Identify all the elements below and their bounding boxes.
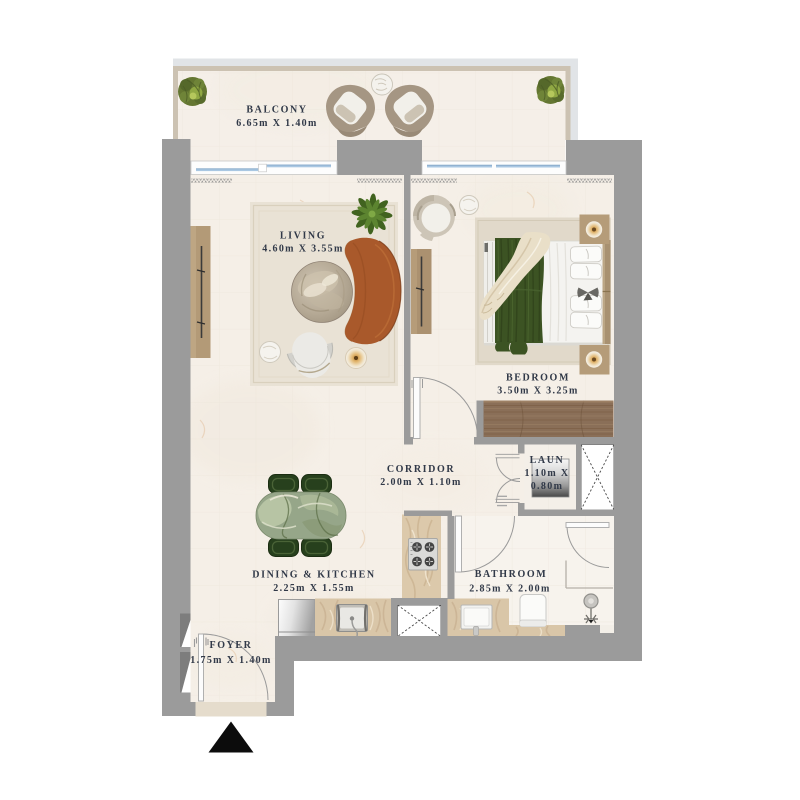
svg-text:LIVING: LIVING: [280, 231, 326, 242]
svg-text:2.85m X 2.00m: 2.85m X 2.00m: [469, 583, 550, 594]
svg-text:1.75m X 1.40m: 1.75m X 1.40m: [190, 655, 271, 666]
svg-text:DINING & KITCHEN: DINING & KITCHEN: [252, 569, 375, 580]
svg-text:2.00m X 1.10m: 2.00m X 1.10m: [380, 477, 461, 488]
svg-text:6.65m X 1.40m: 6.65m X 1.40m: [236, 118, 317, 129]
svg-text:BALCONY: BALCONY: [246, 104, 307, 115]
svg-text:3.50m X 3.25m: 3.50m X 3.25m: [497, 386, 578, 397]
svg-text:BATHROOM: BATHROOM: [475, 569, 548, 580]
svg-text:BEDROOM: BEDROOM: [506, 373, 570, 384]
svg-text:CORRIDOR: CORRIDOR: [387, 464, 455, 475]
svg-text:2.25m X 1.55m: 2.25m X 1.55m: [273, 583, 354, 594]
svg-text:LAUN: LAUN: [530, 455, 565, 466]
svg-text:0.80m: 0.80m: [531, 481, 564, 492]
svg-text:4.60m X 3.55m: 4.60m X 3.55m: [262, 244, 343, 255]
svg-text:1.10m X: 1.10m X: [524, 468, 569, 479]
svg-text:FOYER: FOYER: [210, 640, 253, 651]
